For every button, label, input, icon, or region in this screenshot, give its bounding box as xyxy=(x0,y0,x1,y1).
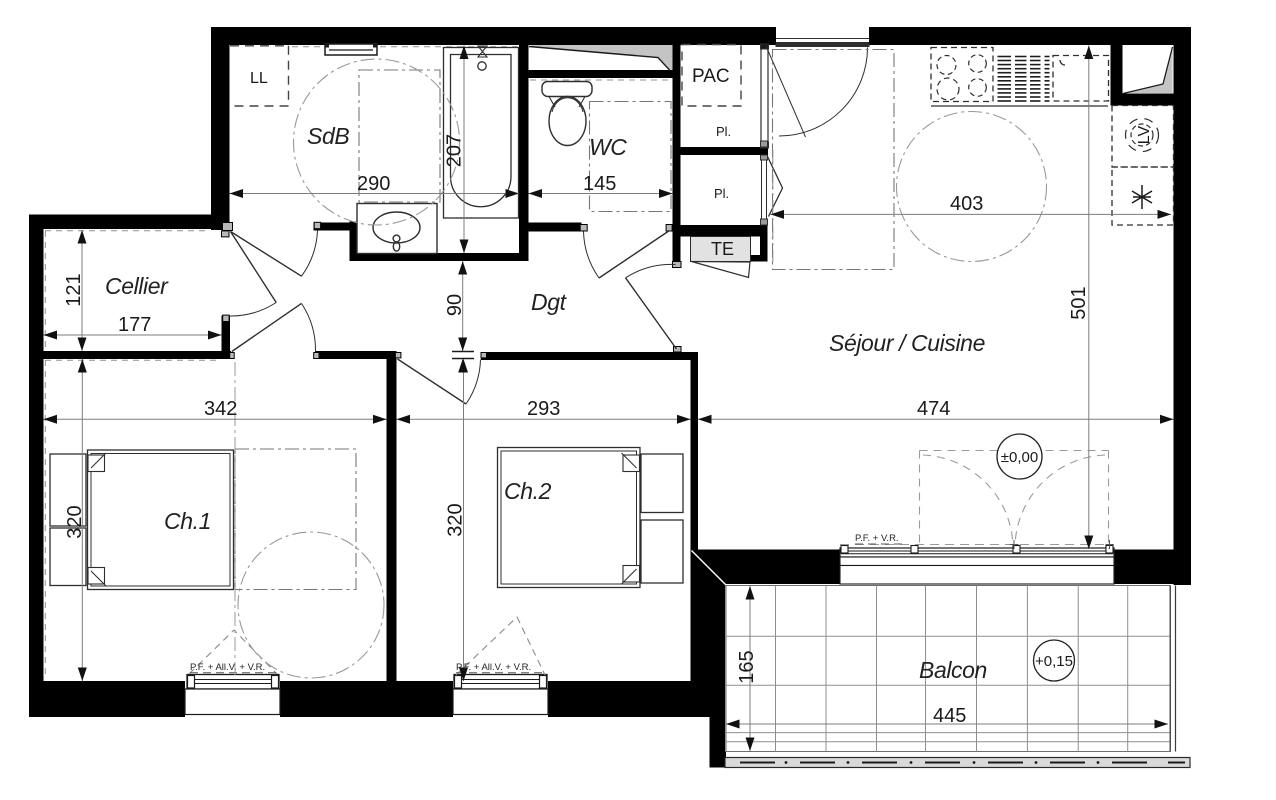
svg-text:342: 342 xyxy=(204,398,237,420)
svg-text:LL: LL xyxy=(250,70,268,87)
svg-text:PAC: PAC xyxy=(692,66,730,87)
svg-text:445: 445 xyxy=(933,705,966,727)
svg-text:LV: LV xyxy=(1136,125,1153,144)
svg-text:207: 207 xyxy=(444,134,466,167)
svg-text:90: 90 xyxy=(444,294,466,316)
svg-text:165: 165 xyxy=(736,650,758,683)
svg-text:SdB: SdB xyxy=(307,123,349,149)
svg-text:Séjour / Cuisine: Séjour / Cuisine xyxy=(829,330,985,356)
svg-text:Dgt: Dgt xyxy=(531,289,568,315)
svg-text:Balcon: Balcon xyxy=(919,657,987,683)
svg-text:Ch.1: Ch.1 xyxy=(164,508,211,534)
svg-text:+0,15: +0,15 xyxy=(1035,653,1073,670)
svg-text:Cellier: Cellier xyxy=(105,273,169,299)
svg-text:177: 177 xyxy=(118,314,151,336)
svg-text:P.F. + V.R.: P.F. + V.R. xyxy=(855,533,899,544)
svg-text:P.F. + All.V. + V.R.: P.F. + All.V. + V.R. xyxy=(190,662,265,673)
svg-text:TE: TE xyxy=(711,239,734,259)
svg-text:±0,00: ±0,00 xyxy=(1001,449,1038,466)
svg-text:293: 293 xyxy=(527,398,560,420)
svg-text:Pl.: Pl. xyxy=(716,124,731,139)
svg-text:121: 121 xyxy=(63,273,85,306)
svg-text:320: 320 xyxy=(445,503,467,536)
svg-text:403: 403 xyxy=(950,193,983,215)
svg-text:WC: WC xyxy=(589,134,627,160)
svg-text:474: 474 xyxy=(917,398,950,420)
svg-text:501: 501 xyxy=(1068,286,1090,319)
svg-text:290: 290 xyxy=(357,173,390,195)
svg-text:Ch.2: Ch.2 xyxy=(504,478,552,504)
svg-text:145: 145 xyxy=(583,173,616,195)
svg-text:320: 320 xyxy=(64,505,86,538)
svg-text:Pl.: Pl. xyxy=(714,186,729,201)
